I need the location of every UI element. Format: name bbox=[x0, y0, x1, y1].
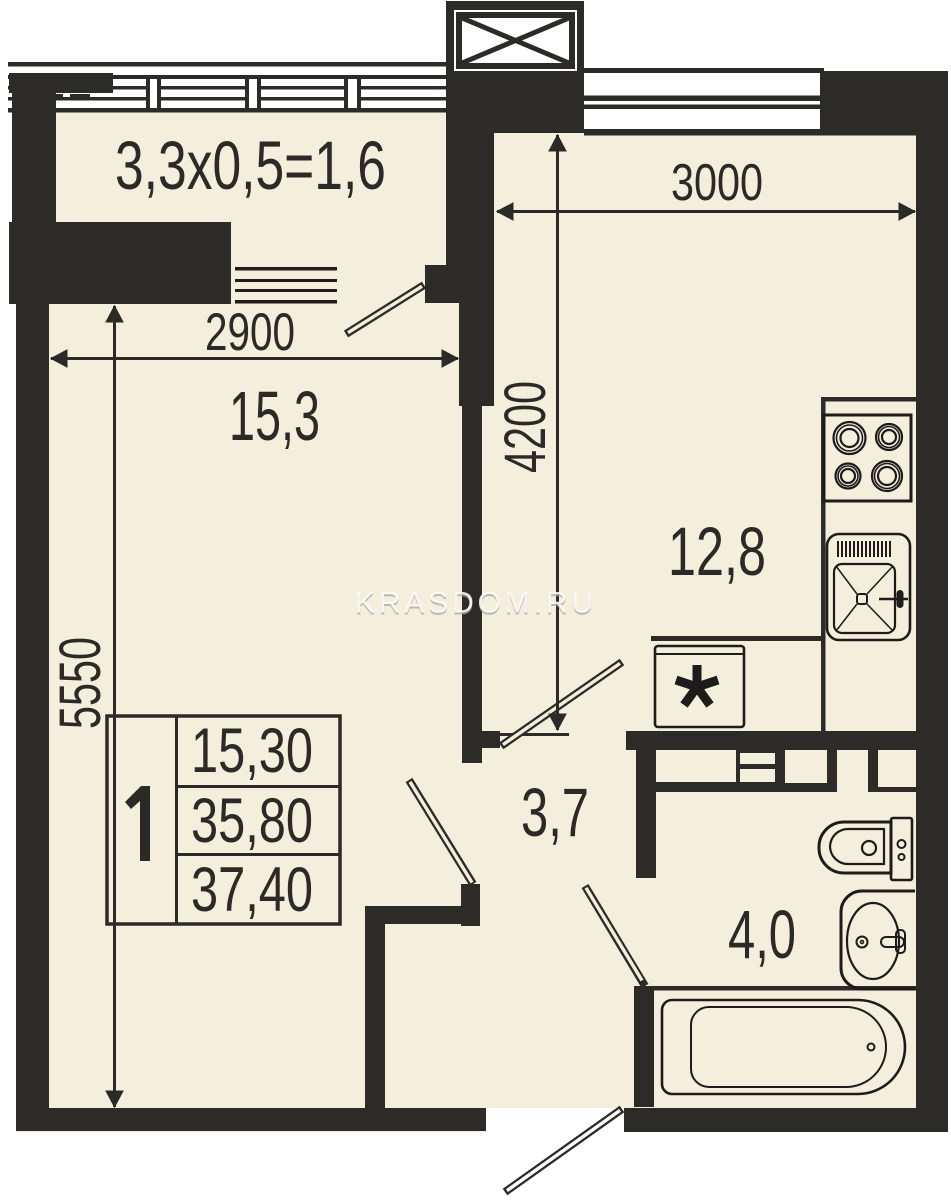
svg-text:3,3x0,5=1,6: 3,3x0,5=1,6 bbox=[115, 127, 386, 204]
svg-text:3000: 3000 bbox=[671, 154, 763, 212]
svg-text:12,8: 12,8 bbox=[668, 513, 766, 590]
svg-text:3,7: 3,7 bbox=[521, 774, 589, 851]
svg-text:15,30: 15,30 bbox=[191, 716, 313, 786]
svg-text:KRASDOM.RU: KRASDOM.RU bbox=[355, 587, 595, 620]
svg-text:2900: 2900 bbox=[205, 303, 295, 362]
svg-text:4200: 4200 bbox=[493, 381, 558, 473]
svg-text:5550: 5550 bbox=[48, 637, 113, 729]
svg-text:35,80: 35,80 bbox=[191, 786, 313, 856]
svg-text:37,40: 37,40 bbox=[191, 855, 313, 925]
svg-text:4,0: 4,0 bbox=[728, 896, 796, 973]
svg-text:15,3: 15,3 bbox=[229, 377, 320, 455]
